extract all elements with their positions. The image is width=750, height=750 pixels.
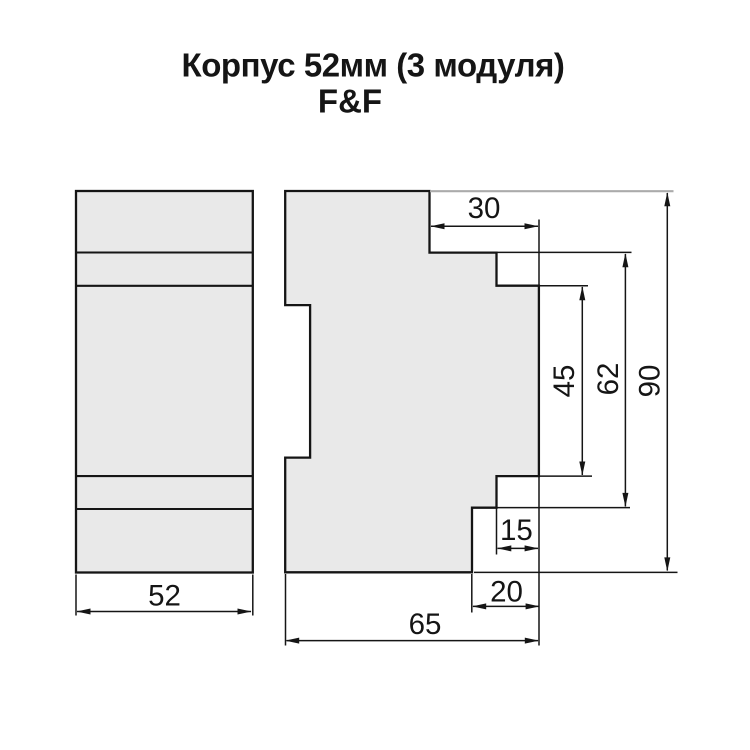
svg-text:F&F: F&F <box>318 83 382 120</box>
svg-text:30: 30 <box>468 192 501 225</box>
svg-text:20: 20 <box>490 576 523 609</box>
svg-text:45: 45 <box>548 365 581 398</box>
svg-text:90: 90 <box>634 365 667 398</box>
svg-text:Корпус 52мм (3 модуля): Корпус 52мм (3 модуля) <box>182 47 565 84</box>
svg-text:65: 65 <box>409 608 442 641</box>
svg-text:15: 15 <box>500 514 533 547</box>
svg-text:52: 52 <box>148 580 181 613</box>
svg-text:62: 62 <box>592 363 625 396</box>
